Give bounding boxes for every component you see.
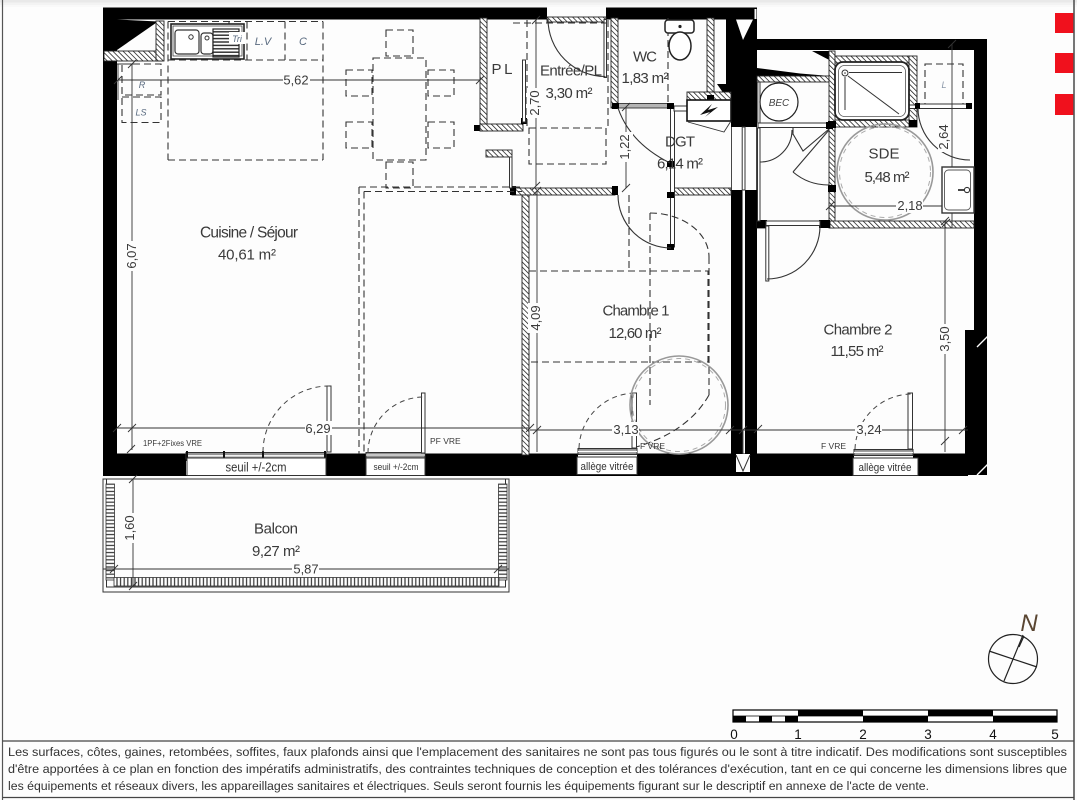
- svg-text:3,24: 3,24: [856, 422, 881, 437]
- svg-text:Balcon: Balcon: [254, 521, 298, 538]
- svg-text:3,30 m²: 3,30 m²: [546, 85, 593, 102]
- svg-text:5,87: 5,87: [293, 562, 318, 577]
- svg-text:SDE: SDE: [869, 146, 900, 163]
- svg-text:6,07: 6,07: [124, 243, 139, 268]
- svg-text:WC: WC: [633, 49, 657, 66]
- svg-text:3,13: 3,13: [613, 422, 638, 437]
- svg-text:1,83 m²: 1,83 m²: [622, 70, 669, 87]
- svg-text:R: R: [139, 80, 146, 90]
- svg-text:4,09: 4,09: [528, 305, 543, 330]
- svg-text:12,60 m²: 12,60 m²: [609, 325, 662, 342]
- svg-text:BEC: BEC: [769, 98, 790, 109]
- svg-text:les équipements et réseaux div: les équipements et réseaux divers, les a…: [8, 779, 929, 793]
- svg-text:2,64: 2,64: [936, 124, 951, 149]
- svg-text:2,70: 2,70: [527, 90, 542, 115]
- svg-text:seuil +/-2cm: seuil +/-2cm: [374, 462, 419, 473]
- svg-text:1: 1: [794, 727, 802, 742]
- svg-text:L.V: L.V: [255, 36, 273, 48]
- svg-text:PF VRE: PF VRE: [430, 436, 461, 446]
- svg-text:5: 5: [1051, 727, 1059, 742]
- svg-text:F VRE: F VRE: [640, 441, 665, 451]
- svg-text:6,14 m²: 6,14 m²: [657, 156, 703, 173]
- svg-text:Cuisine / Séjour: Cuisine / Séjour: [200, 225, 298, 242]
- svg-text:40,61 m²: 40,61 m²: [218, 247, 276, 264]
- svg-text:1,22: 1,22: [617, 134, 632, 159]
- svg-text:L: L: [941, 80, 946, 90]
- svg-text:3: 3: [924, 727, 932, 742]
- svg-text:allège vitrée: allège vitrée: [859, 462, 912, 474]
- svg-text:N: N: [1020, 610, 1038, 637]
- svg-text:1,60: 1,60: [122, 515, 137, 540]
- svg-text:5,48 m²: 5,48 m²: [865, 169, 910, 186]
- svg-text:2,18: 2,18: [897, 198, 922, 213]
- svg-text:2: 2: [859, 727, 867, 742]
- svg-text:Chambre 1: Chambre 1: [603, 303, 670, 320]
- svg-text:1PF+2Fixes VRE: 1PF+2Fixes VRE: [143, 438, 202, 448]
- svg-text:DGT: DGT: [665, 134, 695, 151]
- svg-text:6,29: 6,29: [305, 421, 330, 436]
- svg-text:d'être apportées à ce plan en: d'être apportées à ce plan en fonction d…: [8, 762, 1067, 776]
- svg-text:F VRE: F VRE: [821, 441, 846, 451]
- svg-text:Entrée/PL: Entrée/PL: [540, 63, 602, 80]
- svg-text:11,55 m²: 11,55 m²: [831, 343, 884, 360]
- svg-text:0: 0: [730, 727, 738, 742]
- svg-text:seuil +/-2cm: seuil +/-2cm: [226, 461, 287, 475]
- svg-text:5,62: 5,62: [283, 73, 308, 88]
- svg-text:Les surfaces, côtes, gaines, r: Les surfaces, côtes, gaines, retombées, …: [8, 745, 1067, 759]
- svg-text:allège vitrée: allège vitrée: [581, 461, 634, 473]
- svg-text:C: C: [299, 36, 307, 48]
- svg-text:Tri: Tri: [232, 34, 243, 44]
- svg-text:LS: LS: [135, 108, 146, 118]
- svg-text:9,27 m²: 9,27 m²: [252, 543, 300, 560]
- svg-text:3,50: 3,50: [937, 326, 952, 351]
- svg-text:4: 4: [989, 727, 997, 742]
- svg-text:Chambre 2: Chambre 2: [824, 322, 893, 339]
